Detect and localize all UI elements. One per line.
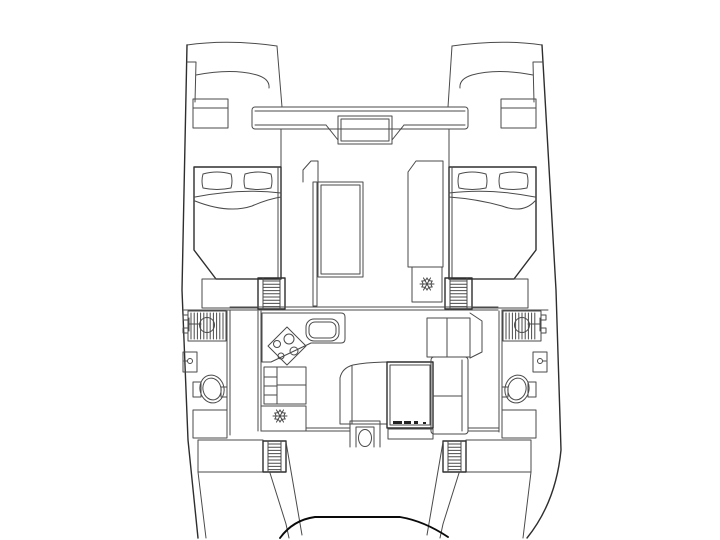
stbd-bed-blanket-fold-2 <box>449 197 535 209</box>
saloon-table-inner <box>390 365 430 425</box>
stbd-anchor-locker-aft <box>501 108 536 128</box>
nav-seat <box>470 313 482 358</box>
stbd-transom-steps <box>443 441 466 472</box>
floorplan-svg <box>0 0 720 540</box>
crossbeam-diag-right <box>392 125 404 140</box>
saloon-cabinet-stbd <box>408 161 443 267</box>
stbd-bow-inner-edge <box>448 46 452 107</box>
galley-sink-inner <box>309 322 336 338</box>
port-sink-hatch <box>191 313 223 339</box>
stbd-pillow-1 <box>458 172 487 190</box>
port-stern-edge-2 <box>270 473 289 538</box>
table-item-1 <box>393 421 402 424</box>
port-bow-top <box>187 42 277 46</box>
stbd-shower-knob <box>538 359 543 364</box>
port-stern-edge-1 <box>198 472 206 538</box>
port-head-locker <box>193 410 227 438</box>
table-item-2 <box>404 421 411 424</box>
stbd-shower-control <box>533 352 547 372</box>
stbd-hull-side <box>527 45 561 538</box>
anchor-platform-inner <box>341 119 389 141</box>
port-hull-side <box>182 45 198 538</box>
stbd-stern-edge-2 <box>440 473 459 538</box>
anchor-platform-outer <box>338 116 392 144</box>
stbd-pillow-2 <box>499 172 528 190</box>
galley-burner-1 <box>284 334 294 344</box>
companionway-seat <box>359 430 372 447</box>
port-bed-blanket-fold-1 <box>195 191 281 197</box>
stbd-sink-tap-hot <box>541 315 546 320</box>
port-bed-outline <box>194 167 281 279</box>
stbd-bow-top <box>452 42 542 46</box>
port-transom-platform <box>198 440 263 472</box>
port-cabin-dresser <box>202 279 258 308</box>
table-item-4 <box>423 422 426 424</box>
stbd-foredeck-curve <box>460 72 533 89</box>
center-skylight-inner <box>321 185 360 274</box>
stbd-sink-hatch <box>506 313 535 339</box>
stbd-bow-step <box>533 62 542 102</box>
port-pillow-1 <box>202 172 232 190</box>
stbd-cabin-dresser <box>472 279 528 308</box>
settee-back <box>340 362 388 378</box>
coachroof-mullion-port-top <box>303 161 318 182</box>
port-bow-inner-edge <box>277 46 282 107</box>
stbd-anchor-locker-fwd <box>501 99 536 108</box>
galley-burner-2 <box>274 341 281 348</box>
center-skylight-outer <box>318 182 363 277</box>
stbd-stern-edge-1 <box>523 472 531 538</box>
stbd-bed-blanket-fold-1 <box>449 191 535 197</box>
boat-floorplan-canvas <box>0 0 720 540</box>
coachroof-mullion-port <box>313 182 317 306</box>
stbd-stern-edge-3 <box>427 442 443 535</box>
port-transom-steps <box>263 441 286 472</box>
port-shower-knob <box>188 359 193 364</box>
crossbeam-diag-left <box>326 125 338 140</box>
port-bow-step <box>187 62 196 102</box>
cockpit-coaming <box>280 517 448 538</box>
stbd-head-locker <box>502 410 536 438</box>
stbd-toilet-bowl <box>506 376 529 402</box>
table-item-3 <box>414 421 418 424</box>
port-anchor-locker-aft <box>193 108 228 128</box>
settee-side <box>340 378 387 424</box>
nav-table <box>427 318 470 357</box>
cockpit-bench <box>388 429 433 439</box>
port-bed-blanket-fold-2 <box>195 197 281 209</box>
stbd-transom-platform <box>466 440 531 472</box>
crossbeam-outer <box>252 107 468 129</box>
stbd-bed-outline <box>449 167 536 279</box>
stbd-sink-tap-cold <box>541 328 546 333</box>
snowflake-icon <box>420 278 434 290</box>
companionway-outer <box>350 421 380 447</box>
saloon-table-outer <box>387 362 433 428</box>
stbd-cabin-steps <box>445 278 472 309</box>
port-anchor-locker-fwd <box>193 99 228 108</box>
snowflake-icon <box>273 410 287 422</box>
port-foredeck-curve <box>196 72 269 89</box>
port-toilet-bowl <box>201 376 224 402</box>
port-cabin-steps <box>258 278 285 309</box>
port-pillow-2 <box>244 172 272 190</box>
